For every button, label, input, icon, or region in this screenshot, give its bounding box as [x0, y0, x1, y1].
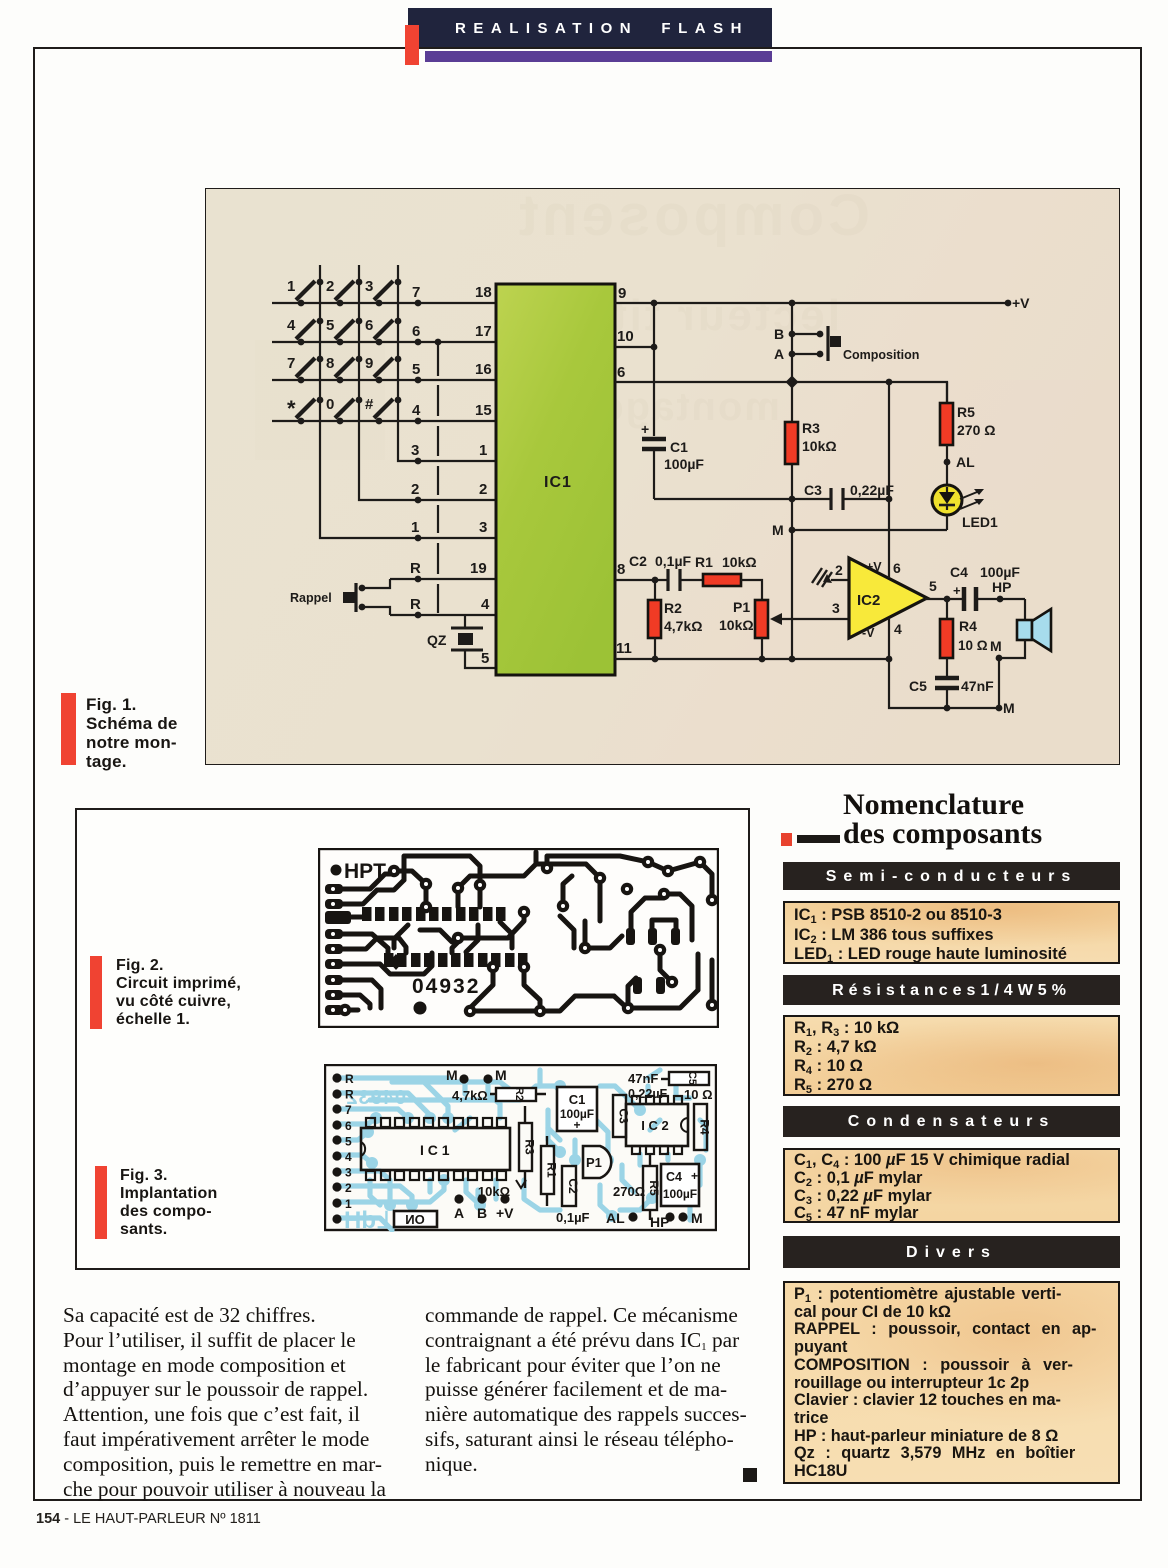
- svg-text:9: 9: [618, 285, 626, 302]
- svg-text:B: B: [774, 326, 784, 342]
- svg-text:ON: ON: [405, 1212, 425, 1227]
- svg-text:R3: R3: [523, 1139, 537, 1155]
- svg-text:+V: +V: [496, 1205, 514, 1221]
- svg-text:C2: C2: [629, 553, 647, 569]
- svg-text:9: 9: [365, 355, 373, 372]
- svg-text:LED1: LED1: [962, 514, 998, 530]
- svg-text:C2: C2: [566, 1178, 580, 1194]
- svg-text:Hb⊥: Hb⊥: [344, 1207, 397, 1232]
- svg-text:*: *: [287, 396, 296, 421]
- svg-text:11: 11: [616, 640, 632, 657]
- svg-text:AL: AL: [956, 454, 975, 470]
- svg-text:Composent: Composent: [515, 188, 870, 248]
- svg-text:10: 10: [617, 328, 634, 345]
- svg-text:16: 16: [475, 361, 492, 378]
- svg-text:QZ: QZ: [427, 632, 447, 648]
- svg-text:R1: R1: [545, 1162, 559, 1178]
- svg-text:17: 17: [475, 323, 492, 340]
- svg-text:04932: 04932: [412, 975, 480, 998]
- svg-text:R5: R5: [957, 404, 975, 420]
- svg-text:47nF: 47nF: [961, 678, 994, 694]
- svg-text:M: M: [1003, 700, 1015, 716]
- svg-text:6: 6: [365, 317, 373, 334]
- svg-text:4: 4: [287, 317, 296, 334]
- svg-text:4: 4: [894, 621, 902, 637]
- svg-text:0: 0: [326, 396, 334, 413]
- svg-text:HP: HP: [992, 579, 1011, 595]
- svg-text:#: #: [365, 396, 374, 413]
- svg-text:7: 7: [412, 284, 420, 301]
- svg-text:10kΩ: 10kΩ: [719, 617, 754, 633]
- svg-text:2: 2: [835, 562, 843, 578]
- svg-text:4: 4: [412, 402, 421, 419]
- svg-text:montage: montage: [599, 385, 780, 429]
- svg-text:6: 6: [617, 364, 625, 381]
- svg-text:2: 2: [345, 1181, 352, 1195]
- svg-text:M: M: [495, 1067, 507, 1083]
- svg-text:R5: R5: [647, 1180, 661, 1196]
- svg-text:47nF: 47nF: [628, 1071, 658, 1086]
- svg-text:C4: C4: [666, 1170, 682, 1184]
- svg-text:IC2: IC2: [857, 592, 880, 609]
- svg-text:Composition: Composition: [843, 348, 919, 362]
- svg-text:AL: AL: [606, 1210, 625, 1226]
- svg-text:4: 4: [345, 1150, 352, 1164]
- svg-text:M: M: [691, 1210, 703, 1226]
- svg-text:C5: C5: [686, 1071, 698, 1085]
- svg-text:A: A: [774, 346, 784, 362]
- svg-text:2: 2: [479, 481, 487, 498]
- svg-text:2: 2: [326, 278, 334, 295]
- svg-text:1: 1: [287, 278, 295, 295]
- svg-text:0,22µF: 0,22µF: [628, 1087, 668, 1101]
- svg-text:04932: 04932: [345, 1087, 406, 1109]
- svg-text:B: B: [477, 1205, 487, 1221]
- svg-text:R: R: [345, 1072, 354, 1086]
- svg-text:C3: C3: [617, 1108, 631, 1124]
- svg-text:3: 3: [479, 519, 487, 536]
- svg-text:7: 7: [287, 355, 295, 372]
- svg-text:6: 6: [412, 323, 420, 340]
- svg-text:C3: C3: [804, 482, 822, 498]
- svg-text:18: 18: [475, 284, 492, 301]
- svg-text:5: 5: [326, 317, 334, 334]
- svg-text:M: M: [446, 1067, 458, 1083]
- svg-text:1: 1: [345, 1197, 352, 1211]
- svg-text:8: 8: [617, 561, 625, 578]
- svg-text:5: 5: [412, 361, 420, 378]
- svg-text:R3: R3: [802, 420, 820, 436]
- svg-text:8: 8: [326, 355, 334, 372]
- svg-text:3: 3: [345, 1166, 352, 1180]
- svg-text:R1: R1: [695, 554, 713, 570]
- svg-text:R2: R2: [513, 1087, 525, 1101]
- svg-text:R4: R4: [698, 1119, 712, 1135]
- svg-text:I C 1: I C 1: [420, 1142, 450, 1158]
- svg-text:5: 5: [345, 1134, 352, 1148]
- svg-text:0,1µF: 0,1µF: [655, 553, 692, 569]
- svg-text:C1: C1: [670, 439, 688, 455]
- svg-text:10kΩ: 10kΩ: [802, 438, 837, 454]
- svg-text:C5: C5: [909, 678, 927, 694]
- svg-text:4: 4: [481, 596, 490, 613]
- svg-text:P1: P1: [733, 599, 750, 615]
- svg-text:270Ω: 270Ω: [613, 1184, 645, 1199]
- svg-text:3: 3: [411, 442, 419, 459]
- svg-text:6: 6: [893, 560, 901, 576]
- svg-text:C4: C4: [950, 564, 968, 580]
- svg-text:M: M: [990, 638, 1002, 654]
- svg-text:7: 7: [345, 1103, 352, 1117]
- svg-text:M: M: [772, 522, 784, 538]
- svg-text:IC1: IC1: [544, 474, 572, 491]
- svg-text:5: 5: [929, 578, 937, 594]
- svg-text:+: +: [953, 583, 961, 598]
- svg-text:19: 19: [470, 560, 487, 577]
- svg-text:0,22µF: 0,22µF: [850, 482, 894, 498]
- svg-text:3: 3: [832, 600, 840, 616]
- svg-text:R2: R2: [664, 600, 682, 616]
- svg-text:R: R: [410, 596, 421, 613]
- svg-text:+: +: [641, 421, 649, 437]
- svg-text:+V: +V: [1012, 295, 1030, 311]
- svg-text:3: 3: [365, 278, 373, 295]
- svg-text:100µF: 100µF: [664, 456, 704, 472]
- svg-text:4,7kΩ: 4,7kΩ: [664, 618, 702, 634]
- svg-text:270 Ω: 270 Ω: [957, 422, 995, 438]
- svg-text:4,7kΩ: 4,7kΩ: [452, 1088, 488, 1103]
- svg-text:5: 5: [481, 650, 489, 667]
- svg-text:+V: +V: [866, 560, 882, 574]
- svg-text:R: R: [410, 560, 421, 577]
- svg-text:6: 6: [345, 1119, 352, 1133]
- svg-text:R4: R4: [959, 618, 977, 634]
- svg-text:100µF: 100µF: [980, 564, 1020, 580]
- svg-text:-V: -V: [862, 626, 875, 640]
- svg-text:10 Ω: 10 Ω: [958, 638, 988, 653]
- svg-text:0,1µF: 0,1µF: [556, 1210, 590, 1225]
- svg-text:I C 2: I C 2: [641, 1118, 668, 1133]
- svg-text:+: +: [573, 1118, 580, 1132]
- svg-text:10kΩ: 10kΩ: [722, 554, 757, 570]
- svg-text:C1: C1: [569, 1092, 586, 1107]
- svg-text:2: 2: [411, 481, 419, 498]
- svg-text:Rappel: Rappel: [290, 591, 332, 605]
- svg-text:R: R: [345, 1088, 354, 1102]
- svg-text:1: 1: [479, 442, 487, 459]
- svg-text:A: A: [454, 1205, 464, 1221]
- svg-text:+: +: [691, 1169, 698, 1183]
- svg-text:100µF: 100µF: [663, 1187, 697, 1201]
- svg-text:1: 1: [411, 519, 419, 536]
- svg-text:15: 15: [475, 402, 492, 419]
- svg-text:P1: P1: [586, 1155, 602, 1170]
- svg-text:10 Ω: 10 Ω: [684, 1087, 713, 1102]
